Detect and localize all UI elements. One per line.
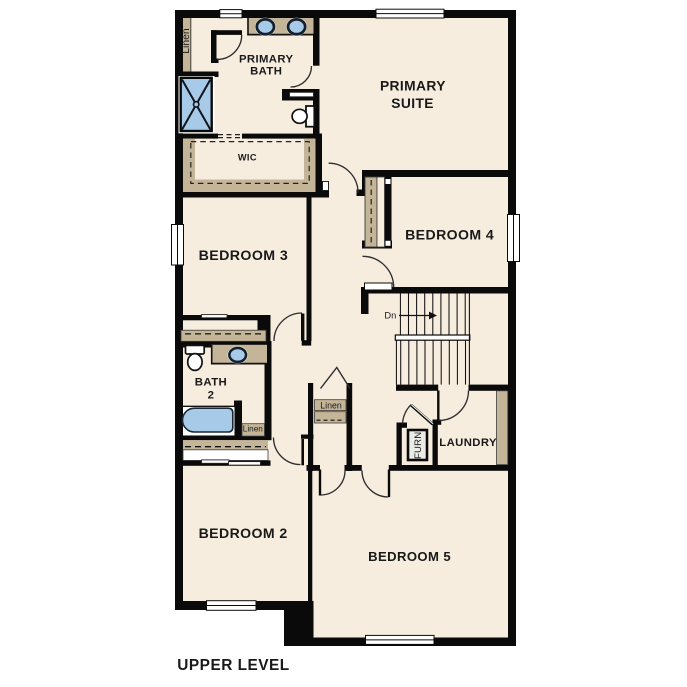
svg-text:PRIMARY: PRIMARY (239, 53, 294, 65)
svg-text:SUITE: SUITE (391, 96, 434, 111)
svg-text:WIC: WIC (238, 153, 257, 163)
svg-text:BEDROOM 3: BEDROOM 3 (199, 248, 289, 264)
svg-text:Dn: Dn (384, 310, 396, 320)
svg-text:2: 2 (208, 389, 215, 401)
svg-text:Linen: Linen (243, 424, 263, 433)
svg-text:BEDROOM 4: BEDROOM 4 (405, 226, 494, 242)
svg-text:FURN: FURN (413, 432, 424, 459)
svg-text:BATH: BATH (195, 377, 227, 389)
svg-text:UPPER LEVEL: UPPER LEVEL (177, 657, 289, 674)
svg-text:PRIMARY: PRIMARY (380, 79, 446, 94)
svg-text:BEDROOM 5: BEDROOM 5 (368, 549, 451, 564)
svg-text:Linen: Linen (320, 400, 342, 410)
svg-text:BEDROOM 2: BEDROOM 2 (199, 525, 288, 541)
svg-text:Linen: Linen (181, 28, 192, 54)
svg-text:LAUNDRY: LAUNDRY (439, 437, 497, 449)
svg-text:BATH: BATH (250, 66, 282, 78)
